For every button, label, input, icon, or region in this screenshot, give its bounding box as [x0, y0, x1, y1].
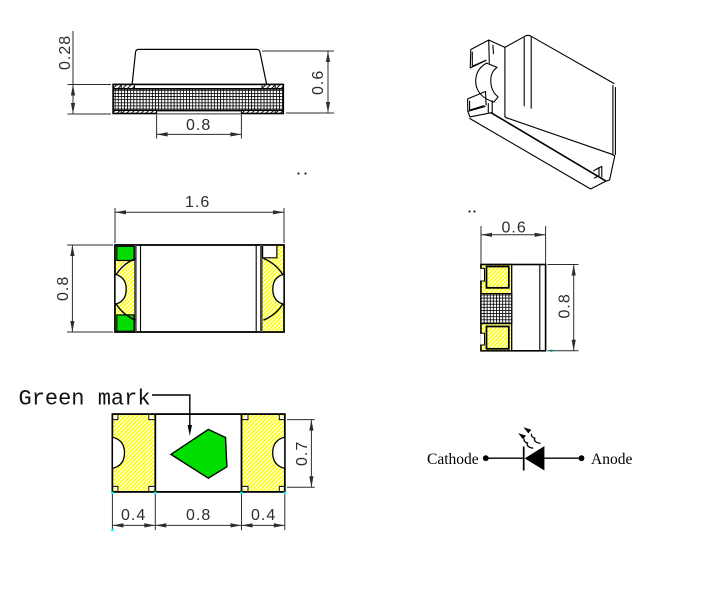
svg-text:0.6: 0.6 [310, 70, 327, 95]
svg-text:0.8: 0.8 [557, 293, 574, 318]
svg-text:0.6: 0.6 [502, 220, 527, 237]
svg-text:Anode: Anode [591, 451, 632, 468]
svg-text:0.8: 0.8 [186, 507, 211, 524]
svg-text:0.8: 0.8 [186, 117, 211, 134]
svg-text:0.4: 0.4 [121, 507, 146, 524]
svg-text:Cathode: Cathode [427, 451, 479, 468]
svg-text:Green mark: Green mark [19, 387, 151, 412]
svg-text:0.4: 0.4 [251, 507, 276, 524]
svg-text:0.28: 0.28 [57, 35, 74, 70]
svg-text:0.7: 0.7 [294, 441, 311, 466]
svg-text:1.6: 1.6 [185, 194, 210, 211]
svg-text:0.8: 0.8 [55, 276, 72, 301]
